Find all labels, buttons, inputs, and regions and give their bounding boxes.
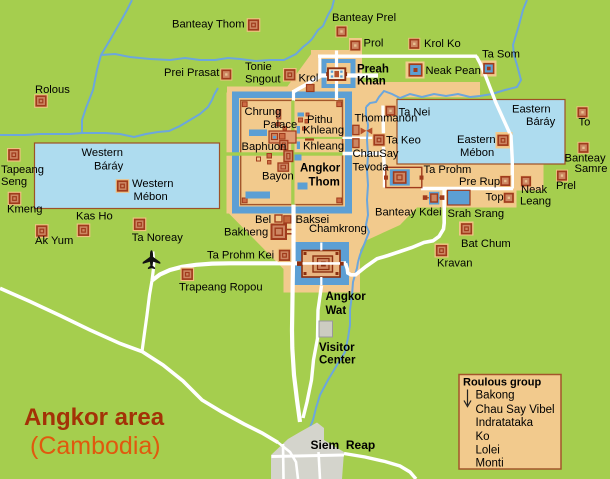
svg-text:Wat: Wat bbox=[326, 305, 347, 317]
svg-text:Mébon: Mébon bbox=[134, 191, 168, 203]
svg-text:Angkor: Angkor bbox=[326, 291, 367, 303]
svg-text:Baphuon: Baphuon bbox=[242, 141, 287, 153]
svg-text:Kravan: Kravan bbox=[437, 258, 472, 270]
svg-text:Chamkrong: Chamkrong bbox=[309, 223, 367, 235]
svg-text:Trapeang Ropou: Trapeang Ropou bbox=[179, 281, 263, 293]
svg-text:Chrung: Chrung bbox=[245, 106, 282, 118]
svg-text:Ta Nei: Ta Nei bbox=[399, 106, 431, 118]
svg-text:Western: Western bbox=[132, 178, 173, 190]
svg-text:Western: Western bbox=[82, 147, 123, 159]
svg-text:Ta Prohm: Ta Prohm bbox=[424, 164, 472, 176]
svg-text:Kmeng: Kmeng bbox=[7, 204, 42, 216]
svg-text:Samre: Samre bbox=[575, 163, 608, 175]
svg-text:Ta Prohm Kei: Ta Prohm Kei bbox=[207, 250, 274, 262]
svg-text:Krol: Krol bbox=[299, 73, 319, 85]
svg-text:Angkor area: Angkor area bbox=[24, 404, 165, 431]
svg-text:Khleang: Khleang bbox=[303, 140, 344, 152]
svg-text:Báráy: Báráy bbox=[94, 161, 124, 173]
svg-text:Khan: Khan bbox=[357, 75, 386, 87]
svg-text:Báráy: Báráy bbox=[526, 116, 556, 128]
svg-text:Rolous: Rolous bbox=[35, 84, 70, 96]
svg-text:Top: Top bbox=[486, 192, 504, 204]
svg-text:Preah: Preah bbox=[357, 64, 389, 76]
svg-text:Angkor: Angkor bbox=[300, 162, 341, 174]
svg-text:Banteay Thom: Banteay Thom bbox=[172, 18, 245, 30]
svg-text:Bayon: Bayon bbox=[262, 171, 294, 183]
svg-text:Pre Rup: Pre Rup bbox=[459, 176, 500, 188]
svg-text:Krol Ko: Krol Ko bbox=[424, 38, 461, 50]
svg-text:Prel: Prel bbox=[556, 180, 576, 192]
svg-text:Lolei: Lolei bbox=[476, 444, 500, 456]
svg-text:Eastern: Eastern bbox=[457, 134, 496, 146]
svg-text:Srah Srang: Srah Srang bbox=[448, 208, 505, 220]
svg-text:Bel: Bel bbox=[255, 214, 271, 226]
svg-text:Monti: Monti bbox=[476, 458, 504, 470]
svg-text:Ak Yum: Ak Yum bbox=[35, 235, 73, 247]
svg-text:Chau Say Vibel: Chau Say Vibel bbox=[476, 404, 555, 416]
svg-text:Prol: Prol bbox=[364, 38, 384, 50]
svg-text:Tonie: Tonie bbox=[245, 61, 272, 73]
svg-text:Roulous group: Roulous group bbox=[463, 376, 541, 388]
svg-text:Banteay Kdei: Banteay Kdei bbox=[375, 207, 442, 219]
svg-text:Khleang: Khleang bbox=[303, 124, 344, 136]
svg-text:Sngout: Sngout bbox=[245, 74, 281, 86]
svg-text:(Cambodia): (Cambodia) bbox=[30, 432, 161, 460]
svg-text:Seng: Seng bbox=[1, 176, 27, 188]
svg-text:Tevoda: Tevoda bbox=[353, 161, 390, 173]
svg-text:Siem Reap: Siem Reap bbox=[311, 438, 376, 452]
svg-text:Thom: Thom bbox=[309, 176, 340, 188]
svg-text:Eastern: Eastern bbox=[512, 104, 551, 116]
svg-text:Ta Som: Ta Som bbox=[482, 49, 520, 61]
svg-text:Prei Prasat: Prei Prasat bbox=[164, 67, 220, 79]
svg-text:Bat Chum: Bat Chum bbox=[461, 238, 511, 250]
svg-text:Center: Center bbox=[319, 354, 356, 366]
svg-text:Palace: Palace bbox=[263, 119, 297, 131]
svg-text:Ta Noreay: Ta Noreay bbox=[132, 232, 183, 244]
svg-text:Neak Pean: Neak Pean bbox=[426, 65, 481, 77]
svg-text:Tapeang: Tapeang bbox=[1, 164, 44, 176]
svg-text:To: To bbox=[579, 117, 591, 129]
svg-text:Leang: Leang bbox=[520, 196, 551, 208]
svg-text:ChauSay: ChauSay bbox=[353, 148, 399, 160]
svg-text:Bakheng: Bakheng bbox=[224, 227, 268, 239]
svg-text:Visitor: Visitor bbox=[319, 342, 355, 354]
svg-text:Ko: Ko bbox=[476, 431, 490, 443]
svg-text:Mébon: Mébon bbox=[460, 147, 494, 159]
svg-text:Neak: Neak bbox=[521, 184, 548, 196]
svg-text:Kas Ho: Kas Ho bbox=[76, 211, 113, 223]
svg-text:Banteay Prel: Banteay Prel bbox=[332, 12, 396, 24]
svg-text:Ta Keo: Ta Keo bbox=[386, 134, 421, 146]
svg-text:Bakong: Bakong bbox=[476, 389, 515, 401]
svg-text:Indratataka: Indratataka bbox=[476, 417, 534, 429]
